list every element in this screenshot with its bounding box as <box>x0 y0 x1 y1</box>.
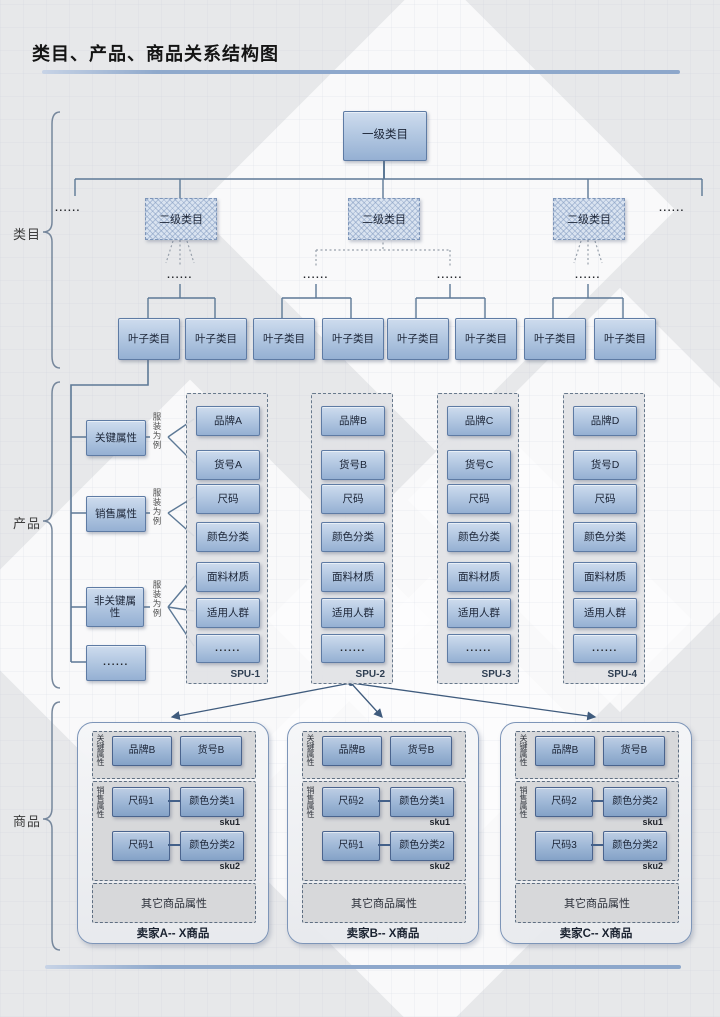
sku-size-box: 尺码1 <box>112 831 170 861</box>
sku-color-box: 颜色分类1 <box>180 787 244 817</box>
leaf-category-box: 叶子类目 <box>322 318 384 360</box>
spu-item-box: ...... <box>321 634 385 663</box>
sku-size-box: 尺码3 <box>535 831 593 861</box>
attr-group-nonkey: 非关键属性 <box>86 587 144 627</box>
spu-item-box: 品牌D <box>573 406 637 436</box>
level2-category-box: 二级类目 <box>553 198 625 240</box>
sku-connector <box>591 844 603 846</box>
key-attrs-label: 关键属性 <box>94 734 106 766</box>
item-no-box: 货号B <box>390 736 452 766</box>
ellipsis-left: ...... <box>44 203 92 214</box>
brand-box: 品牌B <box>112 736 172 766</box>
branch-ellipsis: ...... <box>426 270 474 281</box>
item-no-box: 货号B <box>603 736 665 766</box>
sku-connector <box>378 844 390 846</box>
spu-item-box: 面料材质 <box>196 562 260 592</box>
seller-name: 卖家C-- X商品 <box>501 925 691 941</box>
spu-label: SPU-3 <box>482 669 511 680</box>
spu-item-box: 适用人群 <box>196 598 260 628</box>
seller-card-c: 关键属性 品牌B 货号B 销售属性 尺码2 颜色分类2 sku1 尺码3 颜色分… <box>500 722 692 944</box>
spu-item-box: 颜色分类 <box>447 522 511 552</box>
brand-box: 品牌B <box>535 736 595 766</box>
spu-item-box: ...... <box>447 634 511 663</box>
level2-category-box: 二级类目 <box>348 198 420 240</box>
other-attrs-box: 其它商品属性 <box>302 883 466 923</box>
sku-tag: sku1 <box>599 817 663 827</box>
sku-connector <box>378 800 390 802</box>
brace-commodity <box>43 702 60 950</box>
sku-tag: sku2 <box>386 861 450 871</box>
section-braces <box>43 112 60 950</box>
sku-tag: sku1 <box>386 817 450 827</box>
attr-group-key: 关键属性 <box>86 420 146 456</box>
seller-name: 卖家B-- X商品 <box>288 925 478 941</box>
sales-attrs-label: 销售属性 <box>94 786 106 818</box>
spu-column-4: 品牌D 货号D 尺码 颜色分类 面料材质 适用人群 ...... SPU-4 <box>563 393 645 684</box>
spu-column-3: 品牌C 货号C 尺码 颜色分类 面料材质 适用人群 ...... SPU-3 <box>437 393 519 684</box>
leaf-category-box: 叶子类目 <box>455 318 517 360</box>
spu-label: SPU-1 <box>231 669 260 680</box>
leaf-category-box: 叶子类目 <box>253 318 315 360</box>
attr-group-sales: 销售属性 <box>86 496 146 532</box>
item-no-box: 货号B <box>180 736 242 766</box>
other-attrs-box: 其它商品属性 <box>515 883 679 923</box>
leaf-category-box: 叶子类目 <box>524 318 586 360</box>
leaf-category-box: 叶子类目 <box>594 318 656 360</box>
spu-item-box: 适用人群 <box>573 598 637 628</box>
spu-item-box: ...... <box>196 634 260 663</box>
spu-item-box: 尺码 <box>321 484 385 514</box>
sku-tag: sku2 <box>176 861 240 871</box>
spu-label: SPU-4 <box>608 669 637 680</box>
spu-item-box: 货号C <box>447 450 511 480</box>
branch-ellipsis: ...... <box>292 270 340 281</box>
spu-item-box: 适用人群 <box>321 598 385 628</box>
attr-note-nonkey: 服装为例 <box>150 580 163 634</box>
ellipsis-right: ...... <box>648 203 696 214</box>
spu-label: SPU-2 <box>356 669 385 680</box>
spu-item-box: 尺码 <box>196 484 260 514</box>
leaf-category-box: 叶子类目 <box>185 318 247 360</box>
section-label-category: 类目 <box>13 224 41 243</box>
other-attrs-box: 其它商品属性 <box>92 883 256 923</box>
spu-item-box: 尺码 <box>447 484 511 514</box>
spu-item-box: ...... <box>573 634 637 663</box>
spu-item-box: 货号B <box>321 450 385 480</box>
spu-item-box: 面料材质 <box>447 562 511 592</box>
sales-attrs-label: 销售属性 <box>517 786 529 818</box>
spu-seller-arrows <box>172 680 595 717</box>
sku-color-box: 颜色分类2 <box>603 787 667 817</box>
attr-note-key: 服装为例 <box>150 412 163 466</box>
spu-item-box: 颜色分类 <box>573 522 637 552</box>
sku-connector <box>168 800 180 802</box>
brace-category <box>43 112 60 368</box>
brand-box: 品牌B <box>322 736 382 766</box>
attr-note-sales: 服装为例 <box>150 488 163 542</box>
spu-item-box: 颜色分类 <box>196 522 260 552</box>
spu-item-box: 尺码 <box>573 484 637 514</box>
spu-item-box: 面料材质 <box>573 562 637 592</box>
spu-item-box: 货号D <box>573 450 637 480</box>
sku-size-box: 尺码2 <box>535 787 593 817</box>
level2-category-box: 二级类目 <box>145 198 217 240</box>
level1-category-box: 一级类目 <box>343 111 427 161</box>
sku-connector <box>591 800 603 802</box>
spu-item-box: 颜色分类 <box>321 522 385 552</box>
attr-group-ellipsis: ...... <box>86 645 146 681</box>
seller-card-a: 关键属性 品牌B 货号B 销售属性 尺码1 颜色分类1 sku1 尺码1 颜色分… <box>77 722 269 944</box>
seller-name: 卖家A-- X商品 <box>78 925 268 941</box>
section-label-commodity: 商品 <box>13 811 41 830</box>
spu-item-box: 面料材质 <box>321 562 385 592</box>
key-attrs-label: 关键属性 <box>304 734 316 766</box>
brace-product <box>43 382 60 688</box>
spu-item-box: 货号A <box>196 450 260 480</box>
branch-ellipsis: ...... <box>156 270 204 281</box>
leaf-category-box: 叶子类目 <box>118 318 180 360</box>
spu-item-box: 品牌B <box>321 406 385 436</box>
diagram-page: 类目、产品、商品关系结构图 <box>0 0 720 1017</box>
sku-tag: sku2 <box>599 861 663 871</box>
sku-size-box: 尺码1 <box>322 831 380 861</box>
sku-size-box: 尺码1 <box>112 787 170 817</box>
sku-connector <box>168 844 180 846</box>
spu-item-box: 适用人群 <box>447 598 511 628</box>
spu-column-1: 品牌A 货号A 尺码 颜色分类 面料材质 适用人群 ...... SPU-1 <box>186 393 268 684</box>
sku-tag: sku1 <box>176 817 240 827</box>
sku-color-box: 颜色分类2 <box>390 831 454 861</box>
sku-size-box: 尺码2 <box>322 787 380 817</box>
sales-attrs-label: 销售属性 <box>304 786 316 818</box>
section-label-product: 产品 <box>13 513 41 532</box>
spu-item-box: 品牌C <box>447 406 511 436</box>
sku-color-box: 颜色分类2 <box>180 831 244 861</box>
sku-color-box: 颜色分类1 <box>390 787 454 817</box>
sku-color-box: 颜色分类2 <box>603 831 667 861</box>
branch-ellipsis: ...... <box>564 270 612 281</box>
dotted-connectors <box>166 238 602 266</box>
seller-card-b: 关键属性 品牌B 货号B 销售属性 尺码2 颜色分类1 sku1 尺码1 颜色分… <box>287 722 479 944</box>
spu-column-2: 品牌B 货号B 尺码 颜色分类 面料材质 适用人群 ...... SPU-2 <box>311 393 393 684</box>
leaf-category-box: 叶子类目 <box>387 318 449 360</box>
key-attrs-label: 关键属性 <box>517 734 529 766</box>
spu-item-box: 品牌A <box>196 406 260 436</box>
